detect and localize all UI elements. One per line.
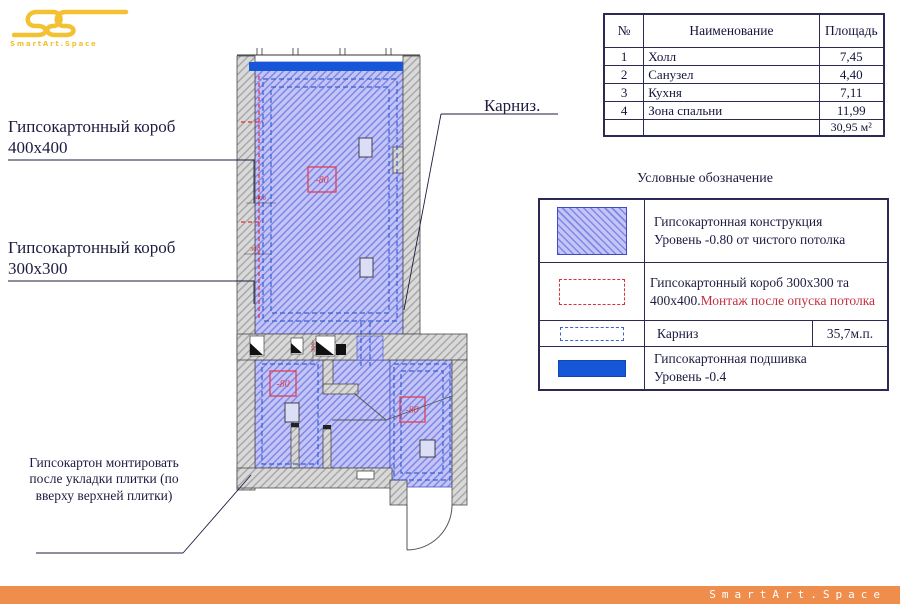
cell-name: Зона спальни xyxy=(644,102,819,120)
legend-text: Уровень -0.4 xyxy=(654,368,807,386)
solid-blue-swatch-icon xyxy=(558,360,626,377)
gypsum-soffit-band xyxy=(249,62,403,71)
cell-empty xyxy=(644,120,819,137)
legend-text: Гипсокартонная конструкция xyxy=(654,213,845,231)
legend-panel: Гипсокартонная конструкция Уровень -0.80… xyxy=(538,198,889,391)
cell-area: 11,99 xyxy=(819,102,884,120)
cell-name: Холл xyxy=(644,48,819,66)
s2s-logo xyxy=(10,6,134,40)
legend-row-korob: Гипсокартонный короб 300x300 та 400x400.… xyxy=(540,263,887,321)
label-korob-400-line2: 400x400 xyxy=(8,137,175,158)
table-row: 1 Холл 7,45 xyxy=(604,48,884,66)
table-row: 2 Санузел 4,40 xyxy=(604,66,884,84)
table-row: 3 Кухня 7,11 xyxy=(604,84,884,102)
footer-bar: SmartArt.Space xyxy=(0,586,900,604)
table-header-row: № Наименование Площадь xyxy=(604,14,884,48)
label-korob-400: Гипсокартонный короб 400x400 xyxy=(8,116,175,159)
red-dashed-swatch-icon xyxy=(559,279,625,305)
header-area: Площадь xyxy=(819,14,884,48)
label-korob-300-line2: 300x300 xyxy=(8,258,175,279)
rooms-area-table: № Наименование Площадь 1 Холл 7,45 2 Сан… xyxy=(603,13,885,137)
svg-text:-80: -80 xyxy=(315,175,328,186)
cell-empty xyxy=(604,120,644,137)
legend-text: Гипсокартонная подшивка xyxy=(654,350,807,368)
cornice-length-value: 35,7м.п. xyxy=(812,321,887,346)
legend-row-construction: Гипсокартонная конструкция Уровень -0.80… xyxy=(540,200,887,263)
header-name: Наименование xyxy=(644,14,819,48)
gypsum-ceiling-areas xyxy=(255,62,452,487)
blue-dashed-swatch-icon xyxy=(560,327,624,341)
label-cornice: Карниз. xyxy=(484,95,540,116)
blue-hatch-swatch-icon xyxy=(557,207,627,255)
legend-text: Уровень -0.80 от чистого потолка xyxy=(654,231,845,249)
cell-total-area: 30,95 м² xyxy=(819,120,884,137)
cell-area: 7,11 xyxy=(819,84,884,102)
table-total-row: 30,95 м² xyxy=(604,120,884,137)
logo-squiggle-icon xyxy=(14,12,126,35)
legend-text-red: Монтаж после опуска потолка xyxy=(701,293,875,308)
cell-name: Кухня xyxy=(644,84,819,102)
label-korob-400-line1: Гипсокартонный короб xyxy=(8,116,175,137)
svg-text:300: 300 xyxy=(310,342,317,352)
label-korob-300: Гипсокартонный короб 300x300 xyxy=(8,237,175,280)
header-num: № xyxy=(604,14,644,48)
label-korob-300-line1: Гипсокартонный короб xyxy=(8,237,175,258)
cell-num: 1 xyxy=(604,48,644,66)
legend-row-cornice: Карниз 35,7м.п. xyxy=(540,321,887,347)
page: { "logo": { "subtitle": "SmartArt.Space"… xyxy=(0,0,900,604)
window-line xyxy=(237,48,420,55)
svg-text:300: 300 xyxy=(250,246,260,253)
legend-title: Условные обозначение xyxy=(637,171,773,187)
cell-area: 7,45 xyxy=(819,48,884,66)
svg-text:-80: -80 xyxy=(276,379,289,390)
cell-num: 4 xyxy=(604,102,644,120)
cell-num: 2 xyxy=(604,66,644,84)
table-row: 4 Зона спальни 11,99 xyxy=(604,102,884,120)
cell-area: 4,40 xyxy=(819,66,884,84)
cell-num: 3 xyxy=(604,84,644,102)
cell-name: Санузел xyxy=(644,66,819,84)
svg-text:400: 400 xyxy=(256,195,266,202)
label-tile-note: Гипсокартон монтировать после укладки пл… xyxy=(28,455,180,504)
legend-row-soffit: Гипсокартонная подшивка Уровень -0.4 xyxy=(540,347,887,389)
entrance-door xyxy=(407,505,452,550)
legend-text: Карниз xyxy=(645,326,812,342)
